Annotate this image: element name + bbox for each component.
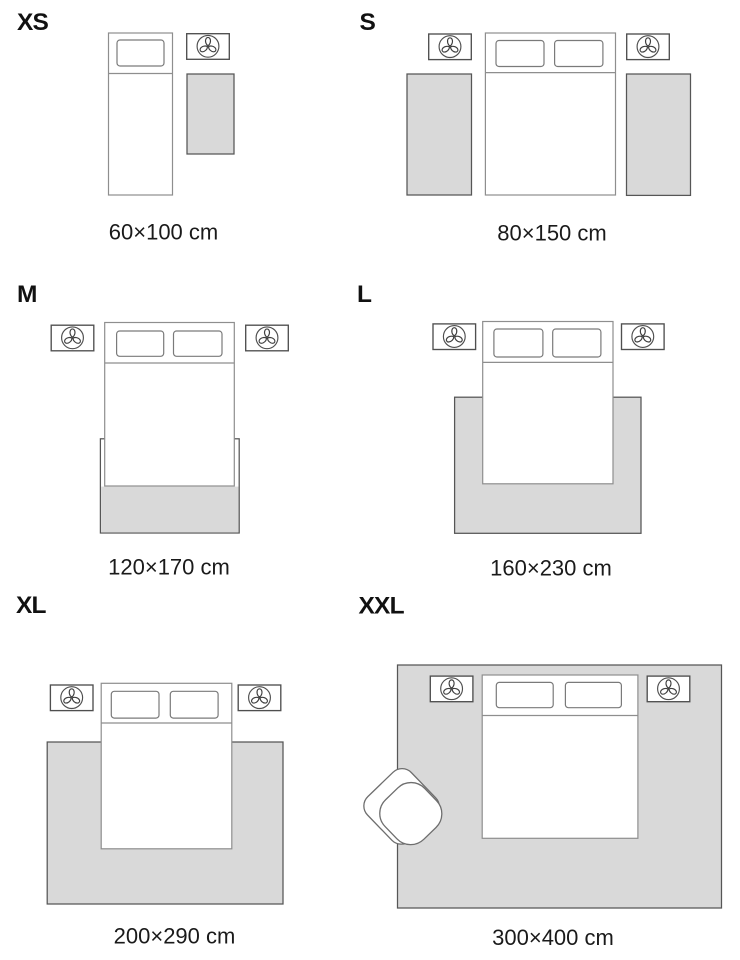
svg-text:XL: XL	[16, 592, 47, 619]
svg-text:L: L	[357, 281, 372, 308]
svg-text:60×100 cm: 60×100 cm	[109, 220, 218, 245]
svg-text:80×150 cm: 80×150 cm	[497, 221, 606, 246]
svg-text:M: M	[17, 281, 37, 308]
svg-text:S: S	[360, 9, 376, 36]
svg-text:300×400 cm: 300×400 cm	[492, 925, 614, 950]
svg-text:XXL: XXL	[359, 593, 405, 620]
svg-text:200×290 cm: 200×290 cm	[114, 924, 236, 949]
svg-text:120×170 cm: 120×170 cm	[108, 555, 230, 580]
svg-text:XS: XS	[17, 9, 49, 36]
svg-text:160×230 cm: 160×230 cm	[490, 556, 612, 581]
